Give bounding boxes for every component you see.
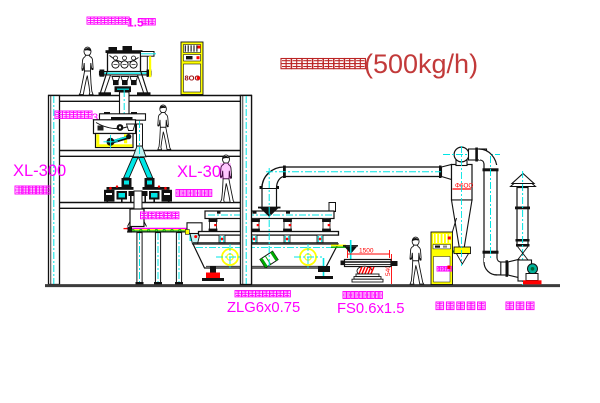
svg-text:1500: 1500 — [359, 248, 374, 255]
svg-text:XL-300: XL-300 — [13, 162, 66, 180]
svg-text:FS0.6x1.5: FS0.6x1.5 — [337, 301, 404, 317]
svg-text:(500kg/h): (500kg/h) — [364, 49, 478, 79]
svg-text:1.5: 1.5 — [127, 16, 144, 30]
svg-text:ZLG6x0.75: ZLG6x0.75 — [227, 300, 300, 316]
